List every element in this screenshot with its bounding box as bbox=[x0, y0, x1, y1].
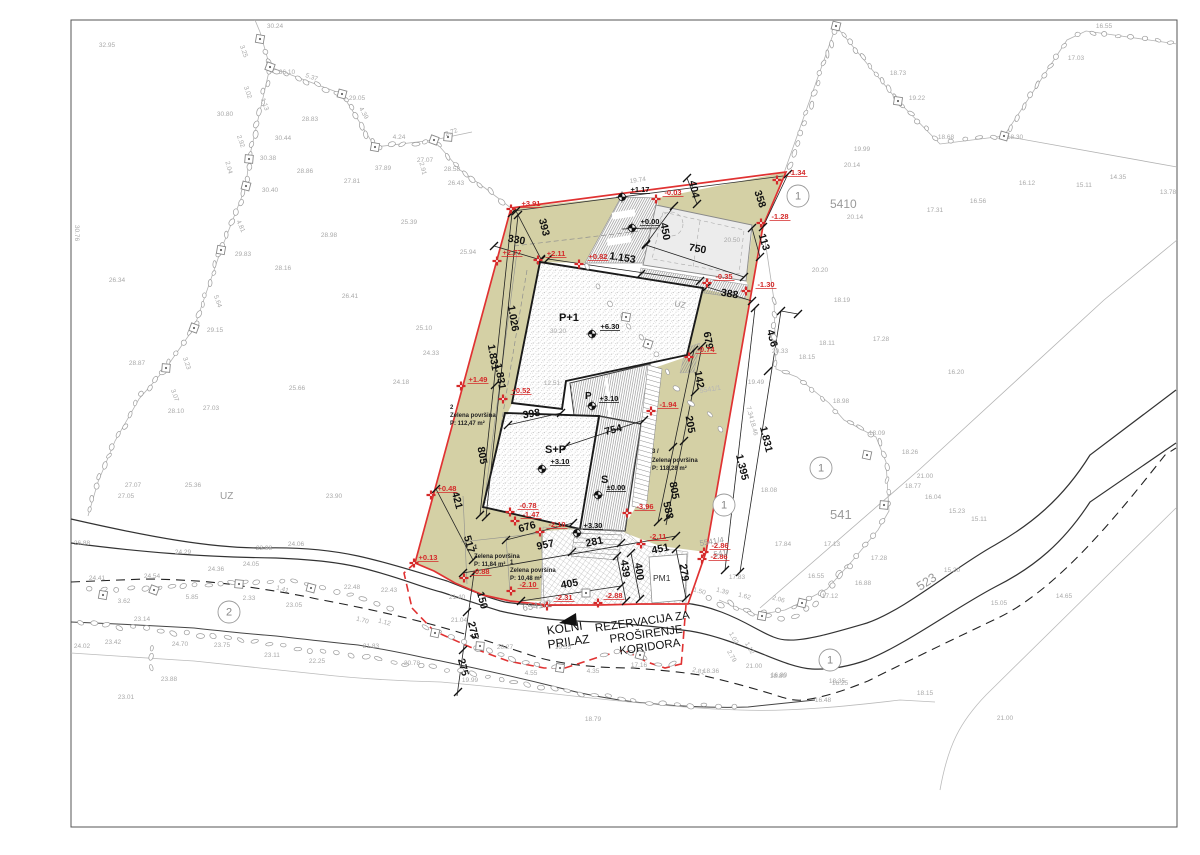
svg-text:30.20: 30.20 bbox=[550, 328, 567, 335]
svg-text:18.26: 18.26 bbox=[902, 449, 919, 456]
svg-text:18.11: 18.11 bbox=[819, 340, 835, 347]
svg-text:21.00: 21.00 bbox=[997, 715, 1014, 722]
svg-text:+3.10: +3.10 bbox=[551, 457, 570, 466]
svg-text:Zelena površina: Zelena površina bbox=[450, 413, 496, 419]
svg-text:12.51: 12.51 bbox=[544, 380, 561, 387]
svg-text:S: S bbox=[601, 474, 608, 486]
svg-text:18.19: 18.19 bbox=[834, 297, 851, 304]
svg-text:-0.88: -0.88 bbox=[472, 567, 489, 576]
svg-text:18.15: 18.15 bbox=[799, 354, 816, 361]
svg-text:21.00: 21.00 bbox=[917, 473, 934, 480]
svg-text:PM1: PM1 bbox=[653, 573, 671, 583]
svg-text:18.73: 18.73 bbox=[890, 70, 907, 77]
svg-text:+2.77: +2.77 bbox=[503, 248, 522, 257]
svg-text:400: 400 bbox=[632, 562, 646, 581]
svg-text:15.05: 15.05 bbox=[991, 600, 1008, 607]
svg-text:26.34: 26.34 bbox=[109, 277, 126, 284]
svg-text:16.20: 16.20 bbox=[948, 369, 965, 376]
svg-text:15.23: 15.23 bbox=[949, 508, 966, 515]
svg-text:16.12: 16.12 bbox=[1019, 180, 1036, 187]
svg-text:+0.82: +0.82 bbox=[589, 252, 608, 261]
svg-text:19.99: 19.99 bbox=[854, 146, 871, 153]
svg-text:25.10: 25.10 bbox=[416, 325, 433, 332]
svg-text:22.25: 22.25 bbox=[309, 658, 326, 665]
svg-text:32.95: 32.95 bbox=[99, 42, 116, 49]
svg-text:22.48: 22.48 bbox=[344, 584, 361, 591]
svg-text:28.87: 28.87 bbox=[129, 360, 146, 367]
svg-text:+1.17: +1.17 bbox=[631, 185, 650, 194]
svg-text:18.15: 18.15 bbox=[917, 690, 934, 697]
svg-text:30.24: 30.24 bbox=[267, 23, 284, 30]
svg-text:20.33: 20.33 bbox=[772, 348, 789, 355]
svg-text:21.40: 21.40 bbox=[449, 594, 466, 601]
svg-text:18.30: 18.30 bbox=[1007, 134, 1024, 141]
svg-text:17.16: 17.16 bbox=[631, 662, 648, 669]
svg-text:Zelena površina: Zelena površina bbox=[510, 568, 556, 574]
svg-text:25.39: 25.39 bbox=[401, 219, 418, 226]
svg-text:1: 1 bbox=[818, 463, 824, 475]
svg-text:P: 11,84 m²: P: 11,84 m² bbox=[474, 561, 505, 568]
svg-text:1: 1 bbox=[827, 655, 833, 667]
svg-text:28.98: 28.98 bbox=[321, 232, 338, 239]
svg-text:16.80: 16.80 bbox=[771, 672, 788, 679]
svg-text:28.10: 28.10 bbox=[168, 408, 185, 415]
svg-text:-0.03: -0.03 bbox=[664, 188, 681, 197]
svg-text:UZ: UZ bbox=[220, 491, 233, 502]
svg-text:17.28: 17.28 bbox=[871, 555, 888, 562]
svg-text:+2.11: +2.11 bbox=[547, 249, 566, 258]
svg-text:-2.10: -2.10 bbox=[548, 520, 565, 529]
svg-text:18.36: 18.36 bbox=[703, 668, 720, 675]
svg-text:19.49: 19.49 bbox=[748, 379, 765, 386]
svg-text:-3.96: -3.96 bbox=[636, 502, 653, 511]
svg-text:13.78: 13.78 bbox=[1160, 189, 1177, 196]
svg-text:16.48: 16.48 bbox=[815, 697, 832, 704]
svg-text:5.85: 5.85 bbox=[186, 594, 199, 601]
svg-text:24.36: 24.36 bbox=[208, 566, 225, 573]
svg-text:24.05: 24.05 bbox=[243, 561, 260, 568]
svg-text:29.15: 29.15 bbox=[207, 327, 224, 334]
svg-text:-1.28: -1.28 bbox=[771, 212, 788, 221]
svg-text:24.18: 24.18 bbox=[393, 379, 410, 386]
svg-text:24.33: 24.33 bbox=[423, 350, 440, 357]
svg-text:16.55: 16.55 bbox=[808, 573, 825, 580]
svg-text:26.50: 26.50 bbox=[640, 225, 657, 232]
svg-text:23.01: 23.01 bbox=[118, 694, 135, 701]
svg-text:4.55: 4.55 bbox=[525, 670, 538, 677]
svg-text:+3.10: +3.10 bbox=[600, 394, 619, 403]
svg-text:28.83: 28.83 bbox=[302, 116, 319, 123]
svg-text:18.98: 18.98 bbox=[833, 398, 850, 405]
svg-text:4.24: 4.24 bbox=[393, 134, 406, 141]
svg-text:P: 118,28 m²: P: 118,28 m² bbox=[652, 465, 687, 472]
svg-text:20.20: 20.20 bbox=[812, 267, 829, 274]
svg-text:21.04: 21.04 bbox=[451, 617, 468, 624]
svg-text:24.29: 24.29 bbox=[175, 549, 192, 556]
svg-text:-1.94: -1.94 bbox=[659, 400, 677, 409]
svg-text:18.08: 18.08 bbox=[761, 487, 778, 494]
svg-text:+3.30: +3.30 bbox=[584, 521, 603, 530]
svg-text:Zelena površina: Zelena površina bbox=[474, 554, 520, 560]
svg-text:16.04: 16.04 bbox=[925, 494, 942, 501]
svg-text:16.55: 16.55 bbox=[1096, 23, 1113, 30]
svg-text:21.83: 21.83 bbox=[363, 643, 380, 650]
svg-text:30.44: 30.44 bbox=[275, 135, 292, 142]
svg-text:17.12: 17.12 bbox=[822, 593, 839, 600]
svg-text:16.25: 16.25 bbox=[832, 680, 849, 687]
svg-text:25.36: 25.36 bbox=[185, 482, 202, 489]
svg-text:24.06: 24.06 bbox=[288, 541, 305, 548]
svg-text:23.42: 23.42 bbox=[105, 639, 122, 646]
svg-text:17.28: 17.28 bbox=[873, 336, 890, 343]
svg-text:3 /: 3 / bbox=[652, 449, 659, 455]
svg-text:21.00: 21.00 bbox=[746, 663, 763, 670]
svg-text:23.90: 23.90 bbox=[326, 493, 343, 500]
svg-text:27.03: 27.03 bbox=[203, 405, 220, 412]
svg-text:-1.30: -1.30 bbox=[757, 280, 774, 289]
svg-text:17.31: 17.31 bbox=[927, 207, 944, 214]
svg-text:541: 541 bbox=[830, 507, 852, 522]
svg-text:20.14: 20.14 bbox=[844, 162, 861, 169]
svg-text:-1.47: -1.47 bbox=[522, 510, 539, 519]
svg-text:23.98: 23.98 bbox=[256, 545, 273, 552]
svg-text:15.11: 15.11 bbox=[971, 516, 987, 523]
svg-text:+0.52: +0.52 bbox=[512, 386, 531, 395]
svg-text:24.54: 24.54 bbox=[144, 573, 161, 580]
svg-text:28.58: 28.58 bbox=[444, 166, 461, 173]
svg-text:17.03: 17.03 bbox=[1068, 55, 1085, 62]
svg-text:+6.30: +6.30 bbox=[601, 322, 620, 331]
svg-text:16.88: 16.88 bbox=[855, 580, 872, 587]
svg-text:P+1: P+1 bbox=[559, 312, 579, 324]
svg-text:26.41: 26.41 bbox=[342, 293, 359, 300]
svg-text:20.14: 20.14 bbox=[847, 214, 864, 221]
svg-text:2: 2 bbox=[226, 607, 232, 619]
svg-text:23.14: 23.14 bbox=[134, 616, 151, 623]
svg-text:19.99: 19.99 bbox=[462, 677, 479, 684]
svg-text:±0.00: ±0.00 bbox=[607, 483, 626, 492]
svg-text:17.83: 17.83 bbox=[729, 574, 746, 581]
svg-text:S+P: S+P bbox=[545, 444, 566, 456]
svg-text:23.75: 23.75 bbox=[214, 642, 231, 649]
svg-text:29.83: 29.83 bbox=[235, 251, 252, 258]
svg-text:23.88: 23.88 bbox=[161, 676, 178, 683]
svg-text:+3.91: +3.91 bbox=[522, 199, 541, 208]
svg-text:25.94: 25.94 bbox=[460, 249, 477, 256]
svg-text:16.56: 16.56 bbox=[970, 198, 987, 205]
svg-text:17.84: 17.84 bbox=[775, 541, 792, 548]
svg-text:24.70: 24.70 bbox=[172, 641, 189, 648]
svg-text:24.02: 24.02 bbox=[74, 643, 91, 650]
svg-text:5410: 5410 bbox=[830, 197, 857, 211]
svg-text:-1.34: -1.34 bbox=[788, 168, 806, 177]
svg-text:27.07: 27.07 bbox=[125, 482, 142, 489]
svg-text:14.65: 14.65 bbox=[1056, 593, 1073, 600]
svg-text:-2.31: -2.31 bbox=[555, 593, 572, 602]
svg-text:14.35: 14.35 bbox=[1110, 174, 1127, 181]
svg-text:30.80: 30.80 bbox=[217, 111, 234, 118]
svg-text:29.05: 29.05 bbox=[349, 95, 366, 102]
svg-text:Zelena površina: Zelena površina bbox=[652, 458, 698, 464]
svg-text:-0.35: -0.35 bbox=[715, 272, 732, 281]
svg-text:36.10: 36.10 bbox=[279, 69, 296, 76]
svg-text:24.41: 24.41 bbox=[89, 575, 106, 582]
svg-text:30.76: 30.76 bbox=[73, 225, 80, 242]
svg-text:-2.88: -2.88 bbox=[605, 591, 622, 600]
svg-text:23.05: 23.05 bbox=[286, 602, 303, 609]
svg-text:23.11: 23.11 bbox=[264, 652, 280, 659]
svg-text:279: 279 bbox=[677, 563, 691, 582]
svg-text:2.33: 2.33 bbox=[243, 595, 256, 602]
svg-text:26.43: 26.43 bbox=[448, 180, 465, 187]
svg-text:28.16: 28.16 bbox=[275, 265, 292, 272]
svg-text:15.11: 15.11 bbox=[1076, 182, 1092, 189]
svg-text:25.66: 25.66 bbox=[289, 385, 306, 392]
svg-text:1: 1 bbox=[721, 500, 727, 512]
svg-text:22.43: 22.43 bbox=[381, 587, 398, 594]
svg-text:37.89: 37.89 bbox=[375, 165, 392, 172]
svg-text:20.50: 20.50 bbox=[724, 237, 741, 244]
svg-text:26.88: 26.88 bbox=[74, 540, 91, 547]
svg-text:17.13: 17.13 bbox=[824, 541, 841, 548]
svg-text:30.38: 30.38 bbox=[260, 155, 277, 162]
svg-text:30.40: 30.40 bbox=[262, 187, 279, 194]
svg-text:P: 112,47 m²: P: 112,47 m² bbox=[450, 420, 485, 427]
svg-text:18.68: 18.68 bbox=[938, 134, 955, 141]
svg-text:-2.11: -2.11 bbox=[650, 532, 667, 541]
svg-text:3.62: 3.62 bbox=[118, 598, 131, 605]
svg-text:19.22: 19.22 bbox=[909, 95, 926, 102]
svg-text:18.77: 18.77 bbox=[905, 483, 922, 490]
svg-text:18.79: 18.79 bbox=[585, 716, 602, 723]
svg-text:-0.78: -0.78 bbox=[519, 501, 536, 510]
svg-text:15.20: 15.20 bbox=[944, 567, 961, 574]
svg-text:19.55: 19.55 bbox=[555, 644, 572, 651]
svg-text:+0.48: +0.48 bbox=[438, 484, 457, 493]
svg-text:4.35: 4.35 bbox=[587, 668, 600, 675]
svg-text:20.78: 20.78 bbox=[404, 660, 421, 667]
svg-text:-0.74: -0.74 bbox=[697, 345, 715, 354]
svg-text:1: 1 bbox=[795, 191, 801, 203]
svg-text:28.86: 28.86 bbox=[297, 168, 314, 175]
svg-text:+1.49: +1.49 bbox=[469, 375, 488, 384]
svg-text:439: 439 bbox=[618, 559, 632, 578]
svg-text:+0.13: +0.13 bbox=[419, 553, 438, 562]
svg-text:P: P bbox=[585, 391, 592, 402]
svg-text:27.81: 27.81 bbox=[344, 178, 361, 185]
svg-text:P: 10,48 m²: P: 10,48 m² bbox=[510, 575, 542, 582]
svg-text:27.05: 27.05 bbox=[118, 493, 135, 500]
svg-text:18.09: 18.09 bbox=[869, 430, 886, 437]
svg-text:20.27: 20.27 bbox=[497, 644, 514, 651]
